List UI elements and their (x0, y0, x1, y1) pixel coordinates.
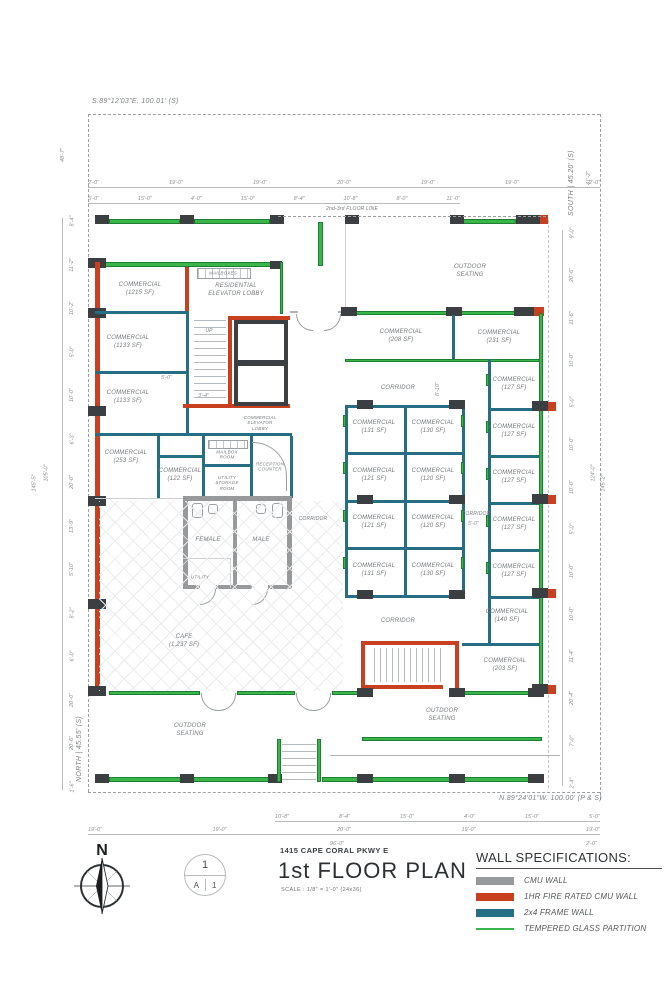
south-storefront-glass (332, 691, 360, 695)
dim-row-top-2: 5'-0" 15'-0" 4'-0" 15'-0" 8'-4" 10'-8" 8… (88, 196, 460, 204)
frame-wall (95, 311, 188, 314)
fire-wall-tip (548, 495, 556, 504)
door-arc (313, 693, 331, 711)
column (532, 588, 548, 598)
room-label-residential-elevator-lobby: RESIDENTIAL ELEVATOR LOBBY (208, 283, 264, 299)
north-storefront-glass (109, 219, 180, 224)
room-label-commercial-131-b: COMMERCIAL (131 SF) (353, 563, 396, 579)
fire-wall (361, 641, 365, 689)
unit-door-glass (343, 415, 346, 427)
room-label-commercial-203: COMMERCIAL (203 SF) (484, 658, 527, 674)
column (449, 495, 465, 504)
north-storefront-glass (459, 219, 516, 224)
room-label-commercial-127-d: COMMERCIAL (127 SF) (493, 517, 536, 533)
room-label-commercial-127-c: COMMERCIAL (127 SF) (493, 470, 536, 486)
frame-wall (202, 436, 205, 498)
elevator-shaft (234, 362, 288, 406)
column (357, 590, 373, 599)
dim: 5'-0" (69, 346, 75, 357)
room-label-commercial-121-b: COMMERCIAL (121 SF) (353, 515, 396, 531)
drawing-scale: SCALE : 1/8" = 1'-0" (24x36) (281, 887, 362, 893)
dim: 9'-0" (569, 228, 575, 239)
dim: 20'-6" (569, 268, 575, 282)
column (528, 774, 544, 783)
dim-col-right: 9'-0" 20'-6" 11'-6" 10'-0" 5'-0" 10'-0" … (562, 230, 581, 786)
dim: 19'-0" (461, 827, 475, 833)
dim: 8'-4" (294, 196, 305, 202)
frame-wall (202, 464, 250, 467)
fire-wall-tip (548, 589, 556, 598)
column (180, 215, 194, 224)
dim-stair-run: 3'-4" (198, 393, 209, 399)
room-label-commercial-1133-a: COMMERCIAL (1133 SF) (107, 335, 150, 351)
column (95, 774, 109, 783)
room-label-commercial-130-a: COMMERCIAL (130 SF) (412, 420, 455, 436)
room-label-commercial-127-a: COMMERCIAL (127 SF) (493, 377, 536, 393)
door-arc (201, 693, 219, 711)
dim-row-top-1: 2'-0" 19'-0" 19'-0" 20'-0" 19'-0" 19'-0"… (88, 180, 600, 188)
column (95, 215, 109, 224)
dim-corridor-east: 5'-0" (468, 521, 479, 527)
room-label-commercial-127-e: COMMERCIAL (127 SF) (493, 564, 536, 580)
entry-glass-partition (318, 222, 323, 266)
frame-wall (290, 436, 293, 498)
floor-line-note: 2nd-3rd FLOOR LINE (326, 206, 378, 213)
unit-door-glass (486, 468, 489, 480)
dim: 20'-0" (69, 475, 75, 489)
mailbox-bank (197, 268, 251, 279)
dim: 15'-0" (400, 814, 414, 820)
exterior-stair-glass (277, 739, 281, 782)
fire-wall-tip (548, 402, 556, 411)
frame-wall (404, 405, 407, 598)
column (357, 774, 373, 783)
bearing-north: S.89°12'03"E. 100.01' (S) (92, 98, 179, 105)
column (449, 774, 465, 783)
dim: 10'-0" (569, 437, 575, 451)
sheet-ref-divider (205, 879, 206, 891)
dim-col-left: 8'-4" 11'-2" 10'-2" 5'-0" 10'-0" 6'-3" 2… (62, 218, 81, 790)
dim: 19'-0" (88, 827, 102, 833)
dim-left-outer-overall: 145'-5" (32, 474, 38, 491)
dim: 11'-6" (569, 311, 575, 325)
unit-door-glass (343, 510, 346, 522)
frame-wall (462, 643, 541, 646)
door-arc (296, 693, 314, 711)
frame-wall (488, 359, 491, 643)
frame-wall (488, 455, 541, 458)
column (532, 494, 548, 504)
legend-label: 2x4 FRAME WALL (524, 908, 594, 917)
dim: 8'-4" (69, 216, 75, 227)
unit-door-glass (461, 510, 464, 522)
exterior-stair-treads (282, 744, 316, 780)
bearing-south: N.89°24'01"W. 100.00' (P & S) (380, 795, 602, 802)
door-arc (218, 693, 236, 711)
unit-door-glass (486, 562, 489, 574)
fire-wall (361, 685, 443, 689)
glass-partition-swatch (476, 928, 514, 930)
exterior-stair-glass (317, 739, 321, 782)
fire-wall (361, 641, 459, 645)
dim: 19'-0" (505, 180, 519, 186)
dim: 15'-0" (241, 196, 255, 202)
sheet-ref-right: 1 (212, 881, 216, 890)
dim: 6'-3" (69, 433, 75, 444)
frame-wall (95, 433, 292, 436)
room-label-commercial-140: COMMERCIAL (140 SF) (486, 609, 529, 625)
frame-wall (488, 549, 541, 552)
dim: 5'-0" (88, 196, 99, 202)
court-edge-line (345, 224, 346, 313)
dim: 10'-0" (569, 480, 575, 494)
unit-door-glass (461, 557, 464, 569)
dim: 4'-0" (464, 814, 475, 820)
column (88, 406, 106, 416)
dim: 11'-0" (446, 196, 460, 202)
room-label-commercial-120-b: COMMERCIAL (120 SF) (412, 515, 455, 531)
dim: 10'-8" (344, 196, 358, 202)
mailbox-room-bank (208, 440, 248, 449)
room-label-commercial-130-b: COMMERCIAL (130 SF) (412, 563, 455, 579)
dim: 10'-2" (69, 301, 75, 315)
dim-right-inner-overall: 124'-0" (591, 464, 597, 481)
unit-door-glass (343, 557, 346, 569)
legend-item-glass: TEMPERED GLASS PARTITION (476, 924, 662, 933)
fire-wall (455, 641, 459, 689)
reception-counter-curve (252, 442, 287, 491)
north-arrow-compass: N (70, 840, 134, 916)
door-arc (324, 314, 341, 331)
frame-wall (452, 315, 455, 361)
frame-wall (157, 436, 160, 498)
south-storefront-glass (237, 691, 295, 695)
column (514, 307, 534, 316)
room-label-utility-storage: UTILITY STORAGE ROOM (215, 475, 238, 491)
stair-treads (194, 320, 226, 404)
room-label-commercial-127-b: COMMERCIAL (127 SF) (493, 424, 536, 440)
unit-door-glass (343, 462, 346, 474)
frame-wall (95, 371, 188, 374)
dim: 19'-0" (421, 180, 435, 186)
room-label-commercial-122: COMMERCIAL (122 SF) (159, 468, 202, 484)
legend-label: 1HR FIRE RATED CMU WALL (524, 892, 638, 901)
column (449, 400, 465, 409)
dim: 20'-0" (337, 827, 351, 833)
dim: 2'-4" (569, 777, 575, 788)
room-label-mailbox-room: MAILBOX ROOM (216, 450, 237, 461)
column (357, 495, 373, 504)
glass-partition (345, 311, 541, 315)
property-line-south (88, 792, 600, 793)
dim: 5'-0" (569, 524, 575, 535)
sheet-number: 1 (185, 855, 225, 876)
dim: 20'-6" (69, 736, 75, 750)
stair-treads (374, 648, 446, 682)
legend-item-frame: 2x4 FRAME WALL (476, 908, 662, 917)
door-arc (296, 314, 313, 331)
room-label-outdoor-seating-sw: OUTDOOR SEATING (174, 723, 206, 739)
dim: 10'-0" (569, 564, 575, 578)
dim: 8'-4" (339, 814, 350, 820)
cmu-wall-swatch (476, 877, 514, 885)
dim-row-bottom-1: 10'-8" 8'-4" 15'-0" 4'-0" 15'-0" 5'-0" (275, 814, 600, 822)
unit-door-glass (461, 415, 464, 427)
fire-wall-tip (548, 685, 556, 694)
dim: 5'-0" (569, 397, 575, 408)
dim: 11'-2" (69, 258, 75, 272)
dim: 5'-0" (589, 814, 600, 820)
legend-label: CMU WALL (524, 876, 568, 885)
dim: 19'-0" (212, 827, 226, 833)
project-address: 1415 CAPE CORAL PKWY E (280, 846, 389, 855)
curved-stair-treads (325, 224, 383, 310)
property-line-east (600, 114, 601, 800)
dim: 2'-0" (88, 180, 99, 186)
column (528, 688, 544, 697)
frame-wall (186, 311, 189, 435)
dim-right-outer-overall: 145'-2" (601, 474, 607, 491)
cafe-edge-line (95, 498, 183, 499)
unit-door-glass (486, 374, 489, 386)
unit-door-glass (486, 421, 489, 433)
column (357, 400, 373, 409)
dim: 2'-0" (586, 841, 597, 847)
wall-line (290, 311, 298, 313)
dim: 8'-0" (396, 196, 407, 202)
room-label-commercial-131-a: COMMERCIAL (131 SF) (353, 420, 396, 436)
unit-door-glass (461, 462, 464, 474)
dim: 13'-9" (69, 519, 75, 533)
corridor-label-south: CORRIDOR (381, 618, 415, 626)
room-label-commercial-231: COMMERCIAL (231 SF) (478, 330, 521, 346)
dim: 10'-0" (569, 353, 575, 367)
legend-title: WALL SPECIFICATIONS: (476, 850, 662, 869)
dim: 10'-0" (69, 388, 75, 402)
dim: 8'-2" (69, 607, 75, 618)
north-letter: N (96, 842, 108, 859)
outdoor-rail-glass (322, 777, 541, 782)
dim: 1'-6" (69, 781, 75, 792)
frame-wall (345, 405, 348, 598)
property-line-north (88, 114, 600, 115)
legend-item-cmu: CMU WALL (476, 876, 662, 885)
dim: 5'-10" (69, 562, 75, 576)
dim-left-inner-overall: 105'-0" (44, 464, 50, 481)
room-label-commercial-1133-b: COMMERCIAL (1133 SF) (107, 390, 150, 406)
south-storefront-glass (109, 691, 200, 695)
column (449, 688, 465, 697)
room-label-commercial-253: COMMERCIAL (253 SF) (105, 450, 148, 466)
dim-corridor-north: 6'-10" (435, 382, 441, 396)
room-label-outdoor-seating-se: OUTDOOR SEATING (426, 708, 458, 724)
sheet-ref-left: A (194, 881, 199, 890)
column (532, 401, 548, 411)
north-storefront-glass (194, 219, 270, 224)
elevator-shaft (234, 320, 288, 364)
outdoor-wall-line (330, 755, 560, 756)
dim: 10'-0" (569, 607, 575, 621)
room-label-commercial-1215: COMMERCIAL (1215 SF) (119, 282, 162, 298)
dim: 7'-0" (569, 735, 575, 746)
legend-item-fire-rated: 1HR FIRE RATED CMU WALL (476, 892, 662, 901)
room-label-outdoor-seating-ne: OUTDOOR SEATING (454, 264, 486, 280)
dim-row-bottom-2: 19'-0" 19'-0" 20'-0" 19'-0" 19'-0" (88, 827, 600, 835)
room-label-commercial-elevator-lobby: COMMERCIAL ELEVATOR LOBBY (244, 415, 277, 431)
frame-wall-swatch (476, 909, 514, 917)
dim: 11'-4" (569, 649, 575, 663)
dim: 19'-0" (586, 827, 600, 833)
floor-plan-sheet: S.89°12'03"E. 100.01' (S) N.89°24'01"W. … (0, 0, 667, 1000)
cafe-floor-hatch (99, 501, 343, 691)
room-label-commercial-121-a: COMMERCIAL (121 SF) (353, 468, 396, 484)
dim-right-top-gap: 41'-2" (586, 171, 592, 185)
dim-stair-width: 5'-0" (161, 375, 172, 381)
column (180, 774, 194, 783)
dim-left-top-gap: 48'-7" (60, 148, 66, 162)
sheet-reference-bubble: 1 A 1 (184, 854, 226, 896)
lobby-glass-partition (280, 262, 283, 314)
fire-wall (228, 316, 232, 408)
dim: 6'-0" (69, 651, 75, 662)
dim: 20'-0" (69, 693, 75, 707)
dim: 15'-0" (138, 196, 152, 202)
dim: 19'-0" (253, 180, 267, 186)
dim: 4'-0" (191, 196, 202, 202)
room-label-commercial-120-a: COMMERCIAL (120 SF) (412, 468, 455, 484)
unit-door-glass (486, 515, 489, 527)
legend-label: TEMPERED GLASS PARTITION (524, 924, 646, 933)
setback-line-east (548, 220, 549, 788)
column (341, 307, 357, 316)
dim: 20'-4" (569, 691, 575, 705)
drawing-title: 1st FLOOR PLAN (278, 858, 467, 884)
dim: 20'-0" (337, 180, 351, 186)
wall-specifications-legend: WALL SPECIFICATIONS: CMU WALL 1HR FIRE R… (476, 850, 662, 940)
floor-line-above (278, 216, 546, 217)
frame-wall (157, 455, 202, 458)
dim: 19'-0" (169, 180, 183, 186)
fire-wall (185, 267, 189, 313)
glass-partition (345, 359, 541, 362)
column (449, 590, 465, 599)
column (357, 688, 373, 697)
dim: 10'-8" (275, 814, 289, 820)
corridor-label-north: CORRIDOR (381, 385, 415, 393)
room-label-commercial-208: COMMERCIAL (208 SF) (380, 329, 423, 345)
dim: 15'-0" (525, 814, 539, 820)
fire-wall-swatch (476, 893, 514, 901)
outdoor-inner-glass (362, 737, 542, 741)
